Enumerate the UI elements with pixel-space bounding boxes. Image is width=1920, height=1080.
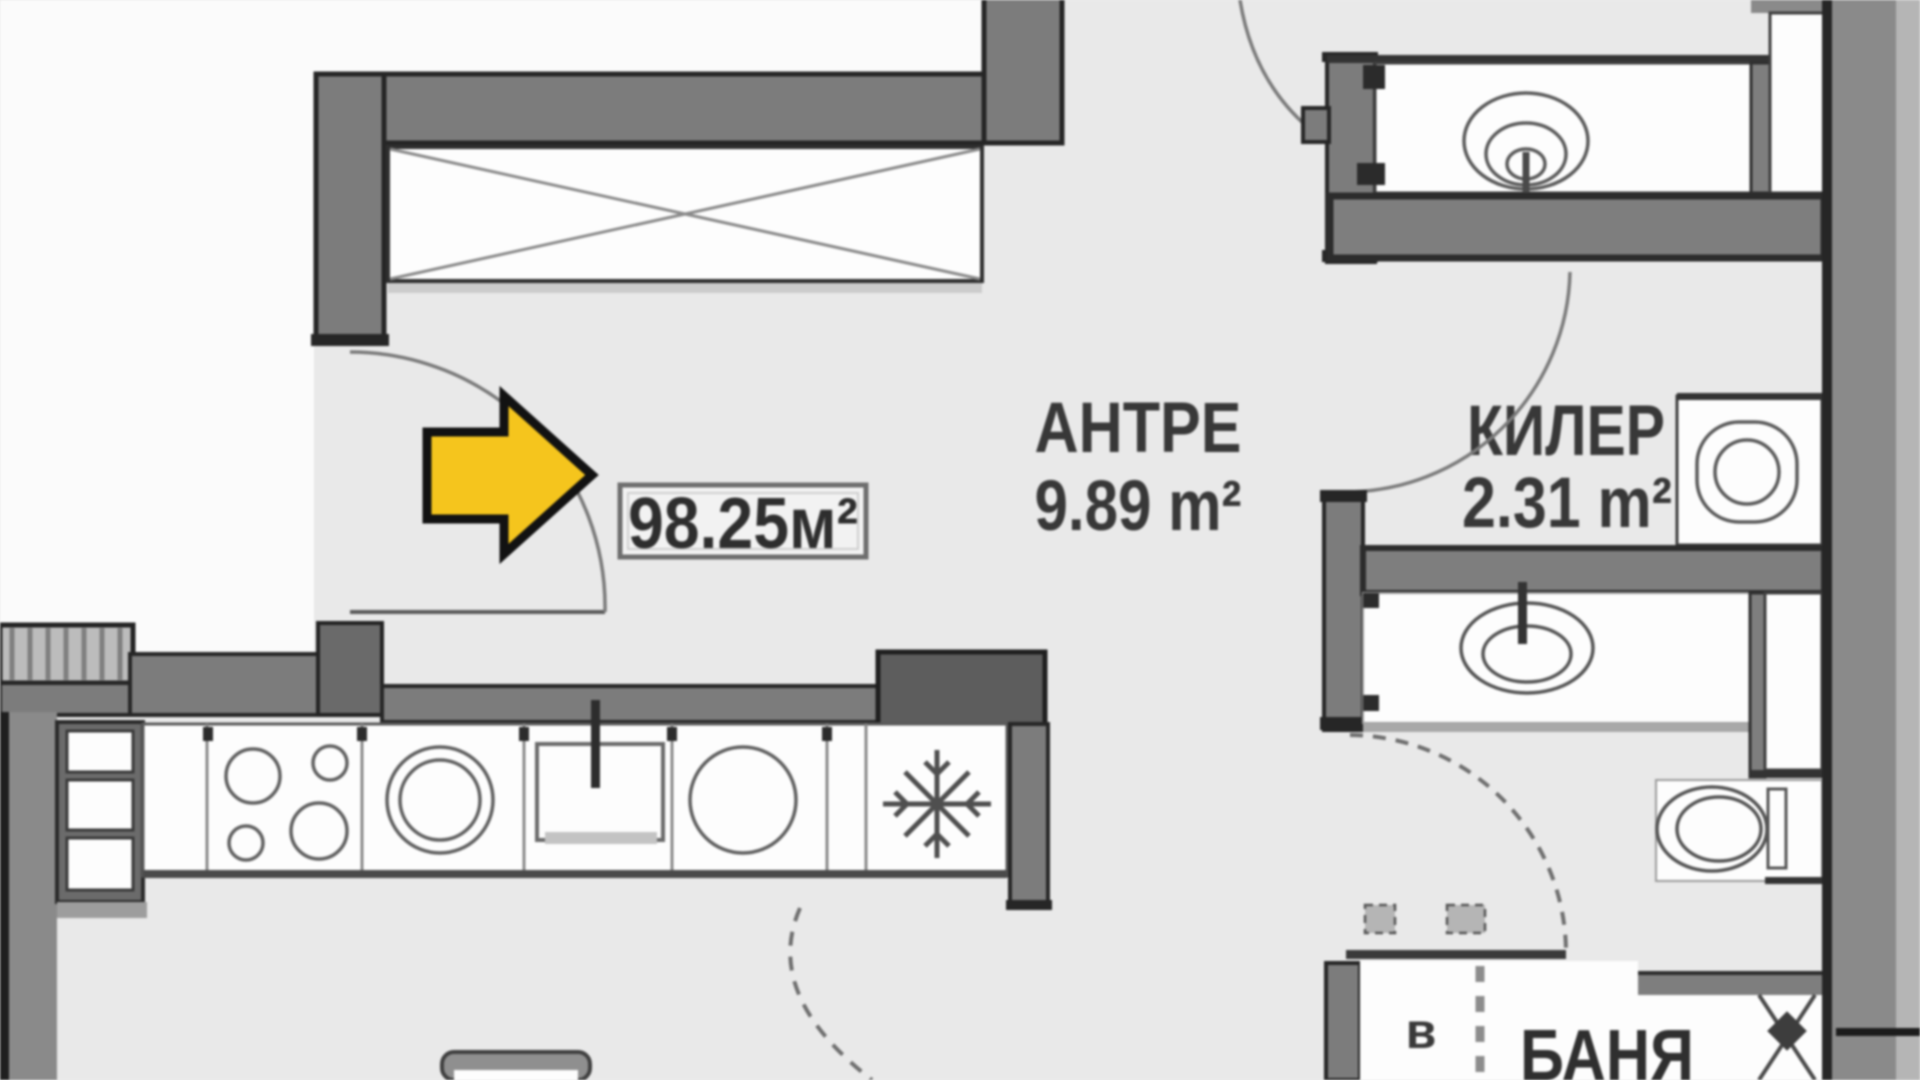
svg-text:2.31 m²: 2.31 m² [1462,464,1672,543]
svg-text:БАНЯ: БАНЯ [1520,1016,1694,1080]
svg-text:98.25м²: 98.25м² [628,484,858,564]
svg-text:в: в [1406,1003,1437,1059]
svg-text:9.89 m²: 9.89 m² [1035,467,1242,546]
svg-text:АНТРЕ: АНТРЕ [1035,389,1242,468]
